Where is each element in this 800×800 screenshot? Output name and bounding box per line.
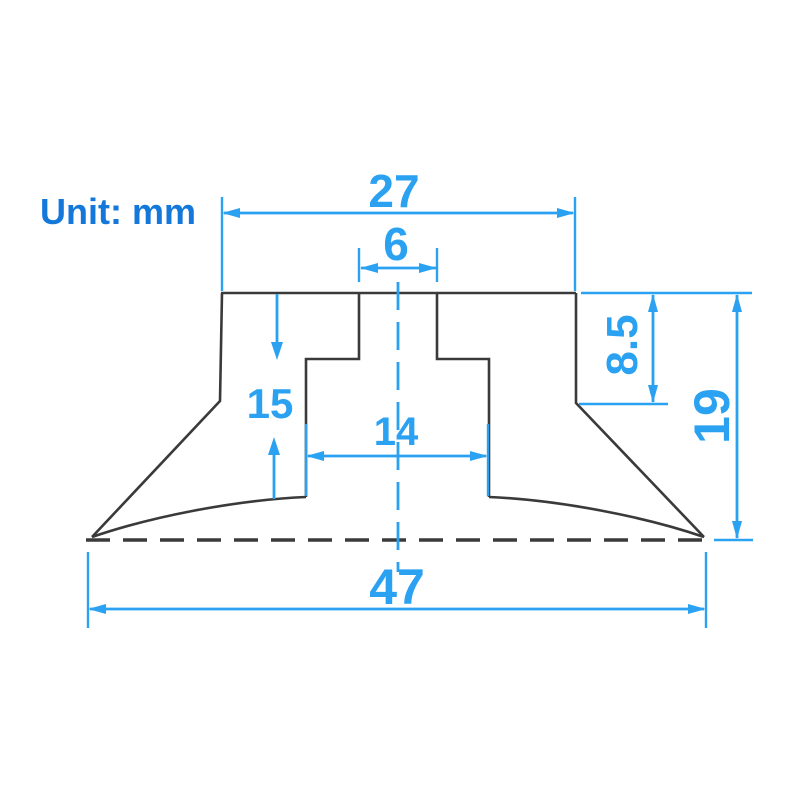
- dim-value-27: 27: [368, 165, 419, 217]
- dimension-slot-width: 6: [359, 218, 437, 282]
- arrowhead-right: [419, 263, 437, 273]
- dimension-cup-height: 15: [247, 294, 294, 499]
- dim-value-19: 19: [684, 388, 740, 444]
- arrowhead-right: [688, 604, 706, 614]
- unit-label: Unit: mm: [40, 191, 196, 232]
- arrowhead-left: [360, 263, 378, 273]
- dim-value-47: 47: [369, 559, 425, 615]
- dim-value-8-5: 8.5: [598, 314, 647, 375]
- dim-value-6: 6: [383, 218, 409, 270]
- part-cavity-right-wall: [437, 294, 489, 497]
- arrowhead-down: [271, 342, 283, 360]
- arrowhead-bottom: [732, 521, 742, 539]
- arrowhead-left: [222, 208, 240, 218]
- arrowhead-bottom: [648, 385, 658, 403]
- arrowhead-right: [470, 451, 488, 461]
- arrowhead-top: [732, 294, 742, 312]
- dimension-overall-height: 19: [684, 294, 753, 540]
- arrowhead-left: [88, 604, 106, 614]
- arrowhead-left: [306, 451, 324, 461]
- dimension-base-width: 47: [88, 552, 706, 628]
- suction-cup-technical-drawing: Unit: mm 27: [0, 0, 800, 800]
- drawing-canvas: Unit: mm 27: [0, 0, 800, 800]
- arrowhead-top: [648, 294, 658, 312]
- part-left-profile: [92, 293, 222, 537]
- dim-value-14: 14: [374, 410, 419, 454]
- arrowhead-up: [268, 437, 280, 455]
- dim-value-15: 15: [247, 380, 294, 427]
- arrowhead-right: [557, 208, 575, 218]
- part-cavity-left-wall: [306, 294, 359, 497]
- dimension-neck-height: 8.5: [579, 294, 668, 404]
